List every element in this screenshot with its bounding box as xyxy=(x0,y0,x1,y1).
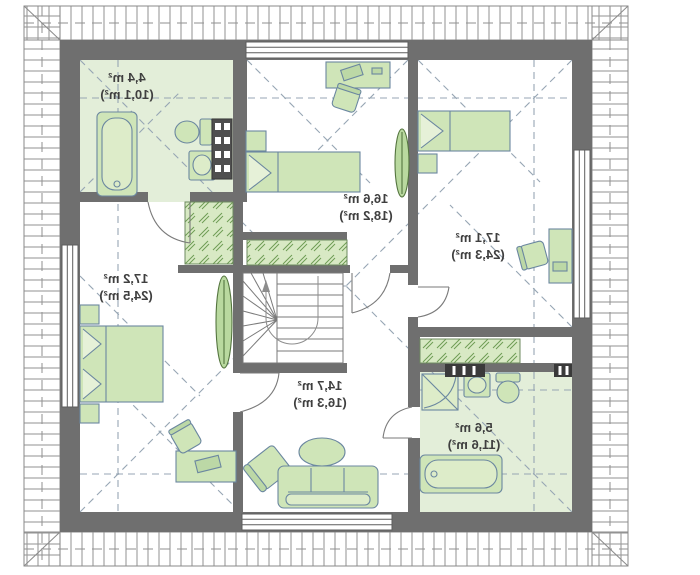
toilet-upper xyxy=(175,119,212,145)
nightstand-left-2 xyxy=(80,404,99,423)
bed-double xyxy=(80,326,163,402)
wardrobe-bathroom xyxy=(420,339,520,363)
bed-right xyxy=(418,111,510,151)
desk-left xyxy=(176,451,236,482)
shelf-cabinet xyxy=(212,119,232,179)
sofa xyxy=(278,466,378,508)
wardrobe-hall xyxy=(185,202,233,264)
bathtub-lower xyxy=(420,455,502,493)
window-left xyxy=(62,245,78,407)
shower xyxy=(422,374,458,410)
washbasin-upper xyxy=(189,151,215,180)
bathtub-upper xyxy=(97,112,137,196)
nightstand-right xyxy=(418,154,437,173)
desk-right xyxy=(549,229,572,283)
plant-left xyxy=(216,276,232,368)
desk-middle xyxy=(326,62,390,88)
wardrobe-stairs xyxy=(247,240,347,265)
toilet-lower xyxy=(496,373,520,403)
radiator-2 xyxy=(554,364,572,377)
floor-plan-drawing xyxy=(0,0,700,575)
floor-plan-page: 4,4 m²(10,1 m²) 16,6 m²(18,2 m²) 17,1 m²… xyxy=(0,0,700,575)
staircase xyxy=(243,273,343,363)
nightstand-left-1 xyxy=(80,305,99,324)
window-top xyxy=(246,42,408,58)
radiator-1 xyxy=(445,364,485,377)
nightstand-middle xyxy=(246,131,266,151)
window-bottom xyxy=(242,514,392,530)
window-right xyxy=(574,150,590,318)
coffee-table-oval xyxy=(299,438,345,466)
plant-middle xyxy=(395,129,409,197)
bed-middle xyxy=(246,152,360,192)
